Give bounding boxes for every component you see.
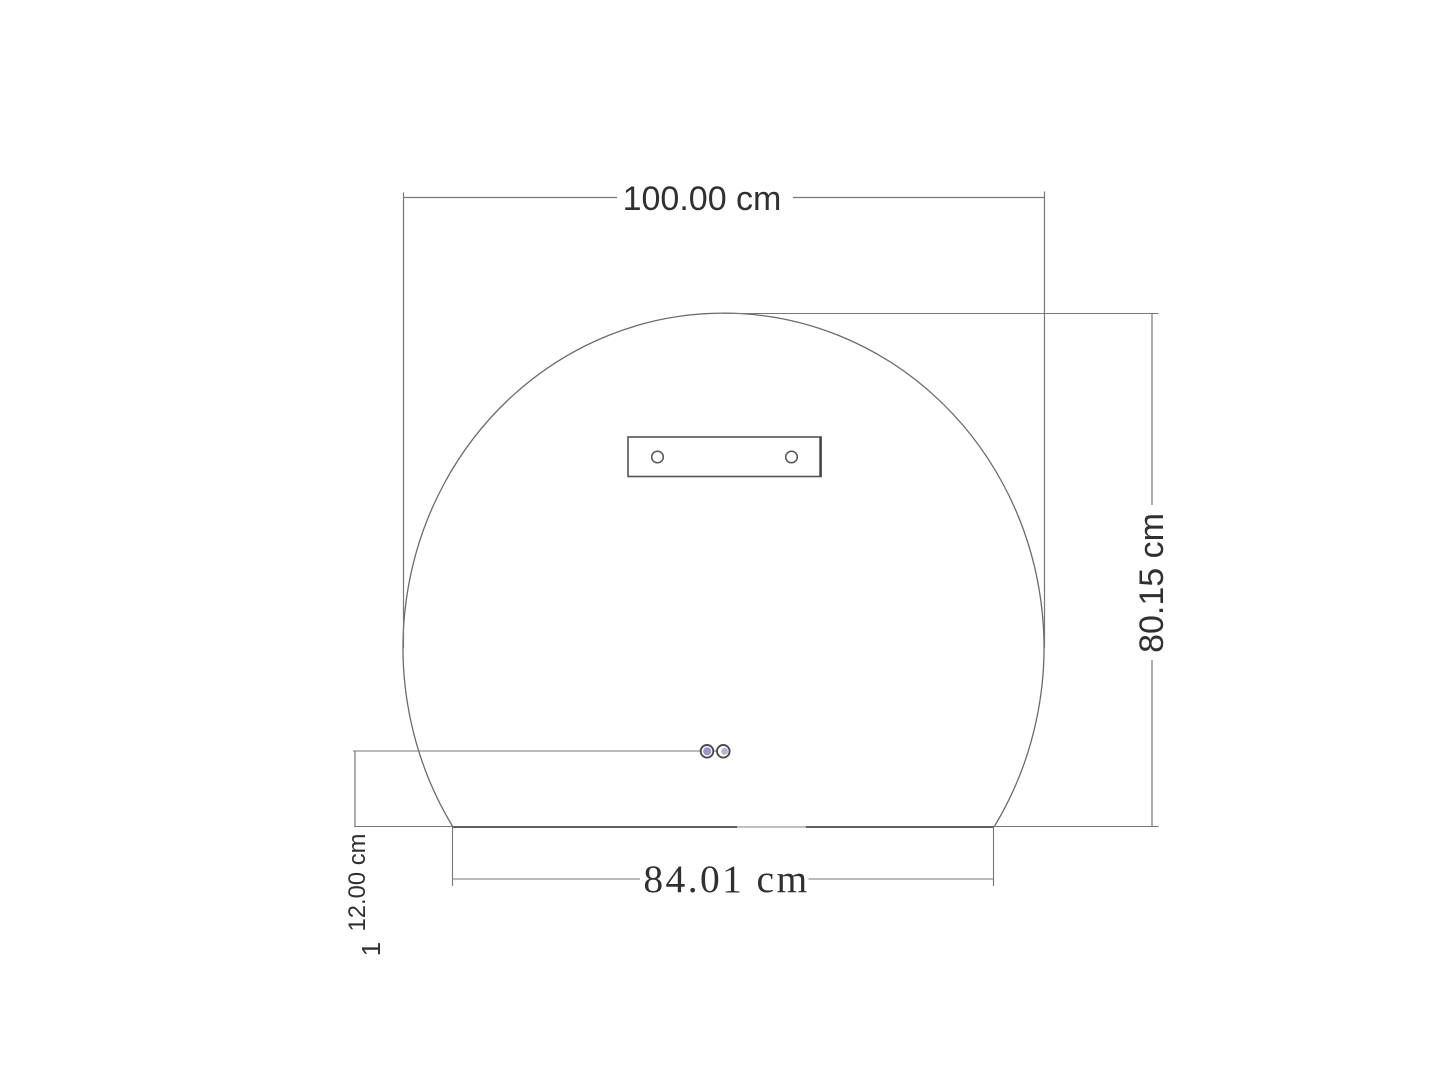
svg-text:84.01 cm: 84.01 cm <box>643 857 809 901</box>
svg-text:1: 1 <box>356 942 386 956</box>
svg-text:80.15 cm: 80.15 cm <box>1133 513 1171 653</box>
svg-text:100.00 cm: 100.00 cm <box>623 180 782 218</box>
svg-text:12.00 cm: 12.00 cm <box>344 834 371 932</box>
